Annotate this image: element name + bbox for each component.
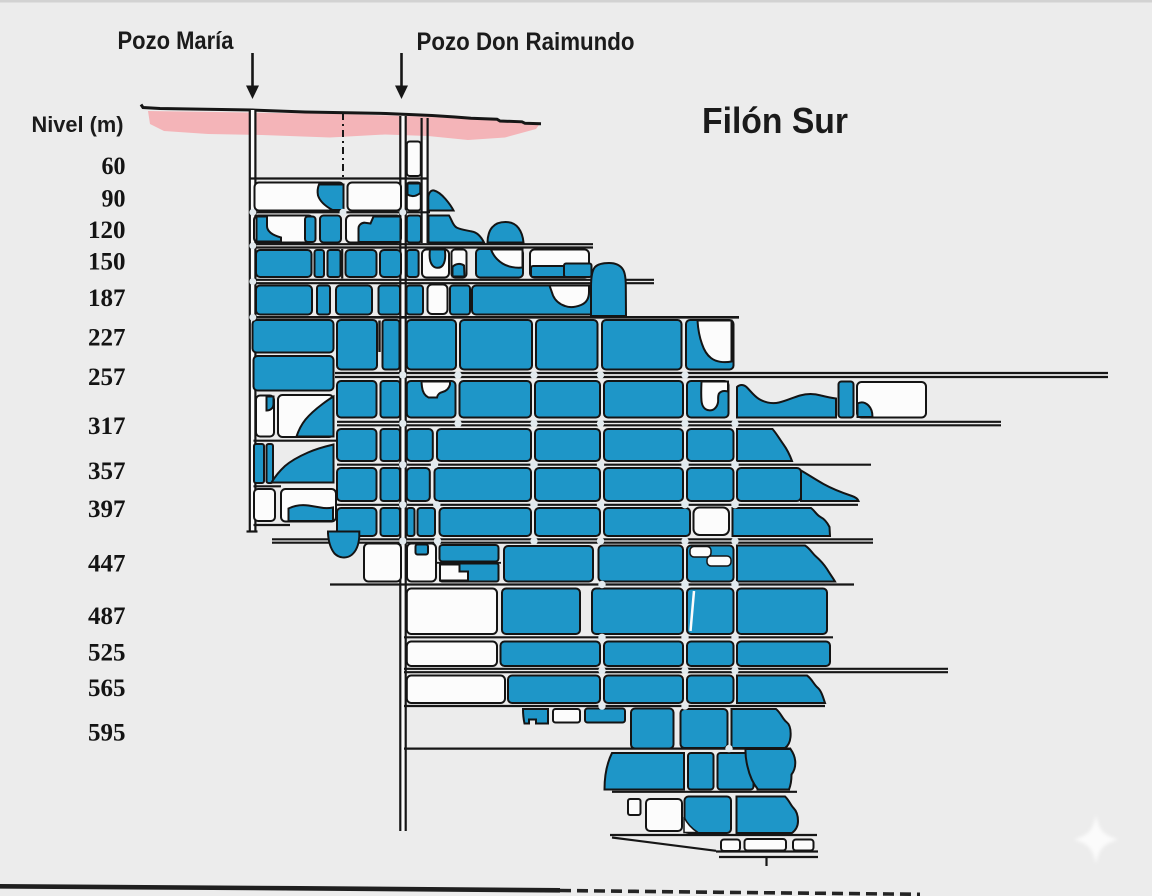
svg-text:60: 60	[102, 153, 126, 180]
svg-text:Filón Sur: Filón Sur	[702, 100, 848, 141]
svg-text:187: 187	[88, 285, 126, 312]
svg-text:Pozo Don Raimundo: Pozo Don Raimundo	[417, 28, 635, 56]
svg-text:90: 90	[102, 186, 126, 213]
svg-text:447: 447	[88, 551, 126, 578]
svg-text:Pozo María: Pozo María	[118, 27, 235, 55]
svg-text:227: 227	[88, 325, 126, 352]
svg-text:595: 595	[88, 720, 126, 747]
svg-text:120: 120	[88, 217, 126, 244]
svg-text:487: 487	[88, 603, 126, 630]
svg-text:397: 397	[88, 496, 126, 523]
svg-text:Nivel (m): Nivel (m)	[32, 112, 124, 137]
svg-text:150: 150	[88, 249, 126, 276]
svg-text:525: 525	[88, 640, 126, 667]
svg-text:257: 257	[88, 364, 126, 391]
svg-text:565: 565	[88, 675, 126, 702]
svg-text:357: 357	[88, 458, 126, 485]
svg-text:317: 317	[88, 413, 126, 440]
